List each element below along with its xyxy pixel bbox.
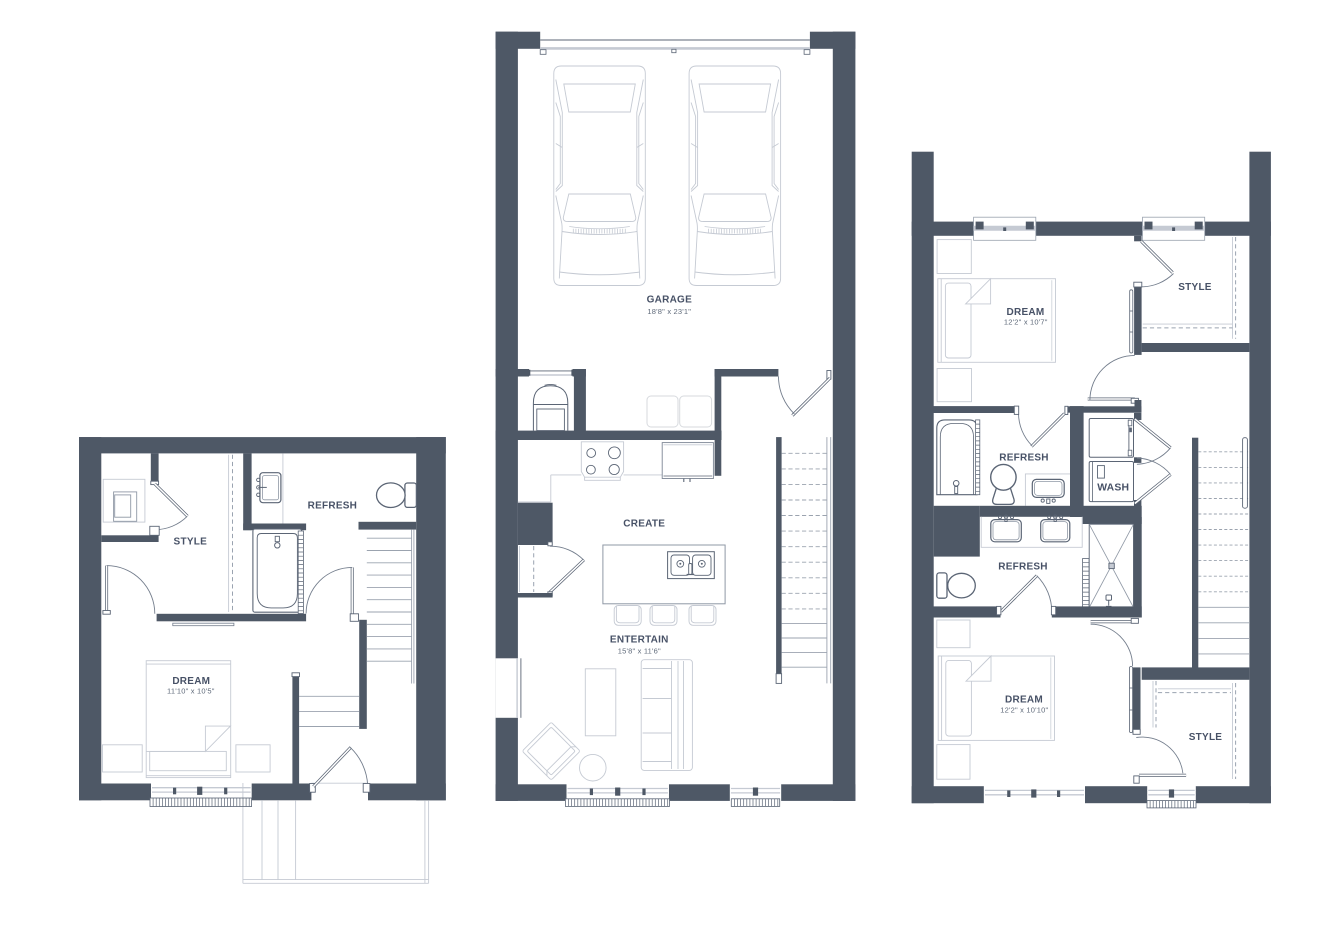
svg-text:DREAM: DREAM — [1007, 307, 1045, 318]
svg-text:STYLE: STYLE — [174, 536, 208, 547]
svg-text:12'2" x 10'7": 12'2" x 10'7" — [1004, 318, 1048, 327]
svg-text:12'2" x 10'10": 12'2" x 10'10" — [1000, 705, 1048, 714]
svg-text:STYLE: STYLE — [1178, 282, 1212, 293]
svg-text:GARAGE: GARAGE — [647, 295, 692, 306]
svg-text:DREAM: DREAM — [172, 676, 210, 687]
svg-text:CREATE: CREATE — [623, 518, 665, 529]
svg-text:WASH: WASH — [1097, 482, 1129, 493]
svg-text:REFRESH: REFRESH — [998, 561, 1048, 572]
svg-text:15'8" x 11'6": 15'8" x 11'6" — [618, 646, 661, 655]
svg-text:ENTERTAIN: ENTERTAIN — [610, 635, 669, 646]
svg-text:REFRESH: REFRESH — [308, 500, 358, 511]
svg-text:11'10" x 10'5": 11'10" x 10'5" — [167, 687, 215, 696]
svg-text:STYLE: STYLE — [1189, 732, 1223, 743]
svg-text:18'8" x 23'1": 18'8" x 23'1" — [647, 307, 691, 316]
svg-text:REFRESH: REFRESH — [999, 452, 1049, 463]
svg-text:DREAM: DREAM — [1005, 695, 1043, 706]
